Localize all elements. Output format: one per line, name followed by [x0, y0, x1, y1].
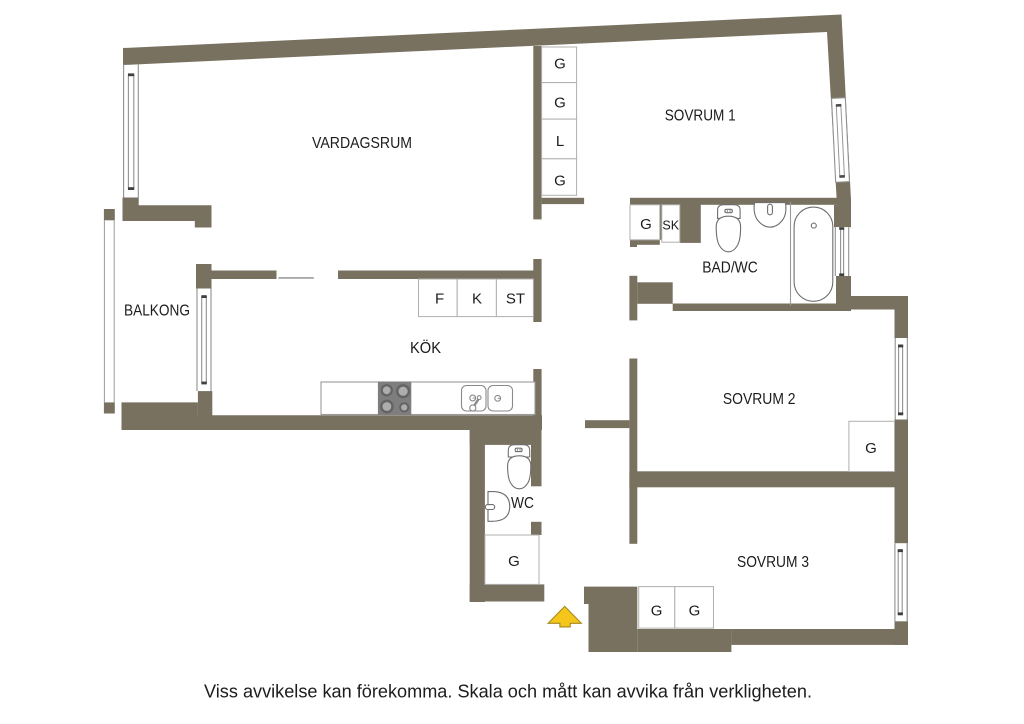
svg-text:VARDAGSRUM: VARDAGSRUM	[312, 135, 412, 152]
svg-text:G: G	[554, 55, 566, 72]
svg-text:G: G	[554, 172, 566, 189]
svg-text:G: G	[640, 216, 652, 233]
svg-text:SK: SK	[662, 219, 679, 233]
svg-text:BAD/WC: BAD/WC	[702, 259, 758, 276]
svg-text:G: G	[508, 553, 520, 570]
svg-text:WC: WC	[511, 495, 534, 512]
svg-text:ST: ST	[506, 291, 525, 308]
svg-text:SOVRUM 1: SOVRUM 1	[665, 107, 736, 124]
svg-text:G: G	[689, 603, 701, 620]
svg-text:SOVRUM 3: SOVRUM 3	[737, 554, 809, 571]
svg-text:G: G	[865, 440, 877, 457]
svg-text:G: G	[651, 603, 663, 620]
svg-text:K: K	[472, 291, 482, 308]
svg-text:F: F	[435, 291, 444, 308]
svg-text:G: G	[554, 95, 566, 112]
svg-text:KÖK: KÖK	[410, 339, 441, 357]
svg-text:SOVRUM 2: SOVRUM 2	[723, 391, 796, 408]
svg-text:Viss avvikelse kan förekomma.: Viss avvikelse kan förekomma. Skala och …	[204, 681, 812, 701]
svg-text:L: L	[556, 133, 564, 150]
svg-text:BALKONG: BALKONG	[124, 303, 190, 320]
